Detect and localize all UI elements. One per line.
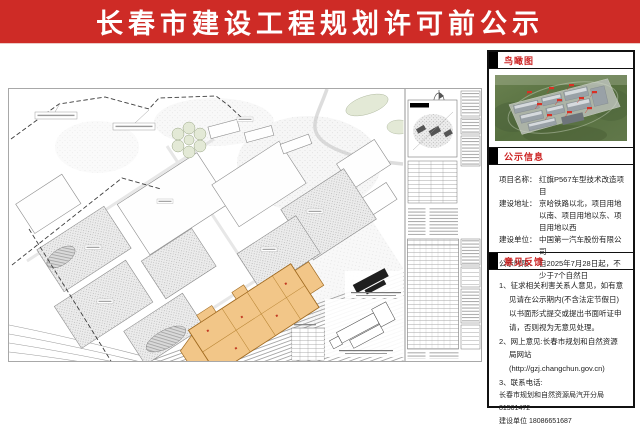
feedback-phone-builder: 建设单位 18086651687 <box>499 416 625 429</box>
field-value: 京哈铁路以北，项目用地以南、项目用地以东、项目用地以西 <box>539 198 628 234</box>
black-tab-marker <box>489 253 498 269</box>
aerial-photo <box>495 75 627 141</box>
feedback-item-3: 3、联系电话: <box>499 376 625 390</box>
aerial-photo-frame <box>489 69 633 148</box>
field-label: 项目名称： <box>499 174 539 198</box>
feedback-header: 意见反馈 <box>489 253 633 270</box>
notice-info-header: 公示信息 <box>489 148 633 165</box>
birdseye-title: 鸟瞰图 <box>504 54 534 67</box>
section-notice-info: 公示信息 项目名称： 红旗P567车型技术改造项目 建设地址： 京哈铁路以北，项… <box>489 148 633 253</box>
site-plan-sheet <box>8 88 482 362</box>
field-address: 建设地址： 京哈铁路以北，项目用地以南、项目用地以东、项目用地以西 <box>499 198 628 234</box>
keymap <box>408 100 457 157</box>
title-column <box>405 89 480 361</box>
feedback-body: 1、征求相关利害关系人意见，如有意见请在公示期内(不含法定节假日)以书面形式提交… <box>489 270 633 433</box>
site-plan-drawing <box>9 89 481 361</box>
footer-notes <box>408 352 459 359</box>
feedback-item-2: 2、网上意见:长春市规划和自然资源局网站(http://gzj.changchu… <box>499 335 625 377</box>
info-sidebar: 鸟瞰图 <box>487 50 635 408</box>
feedback-phone-bureau: 长春市规划和自然资源局汽开分局81501472 <box>499 390 625 416</box>
notice-info-title: 公示信息 <box>504 150 544 163</box>
section-feedback: 意见反馈 1、征求相关利害关系人意见，如有意见请在公示期内(不含法定节假日)以书… <box>489 253 633 406</box>
banner: 长春市建设工程规划许可前公示 <box>0 0 640 44</box>
field-project-name: 项目名称： 红旗P567车型技术改造项目 <box>499 174 628 198</box>
indicator-table <box>408 239 459 349</box>
section-birdseye: 鸟瞰图 <box>489 52 633 148</box>
field-label: 建设地址： <box>499 198 539 234</box>
field-value: 红旗P567车型技术改造项目 <box>539 174 628 198</box>
drawing-area <box>9 89 473 361</box>
birdseye-header: 鸟瞰图 <box>489 52 633 69</box>
feedback-item-1: 1、征求相关利害关系人意见，如有意见请在公示期内(不含法定节假日)以书面形式提交… <box>499 279 625 335</box>
black-tab-marker <box>489 52 498 68</box>
page-title: 长春市建设工程规划许可前公示 <box>96 2 544 41</box>
stamp-boxes <box>461 91 480 349</box>
notice-info-body: 项目名称： 红旗P567车型技术改造项目 建设地址： 京哈铁路以北，项目用地以南… <box>489 165 633 253</box>
legend-table <box>408 161 457 203</box>
notes-block <box>408 208 458 235</box>
black-tab-marker <box>489 148 498 164</box>
feedback-title: 意见反馈 <box>504 255 544 268</box>
